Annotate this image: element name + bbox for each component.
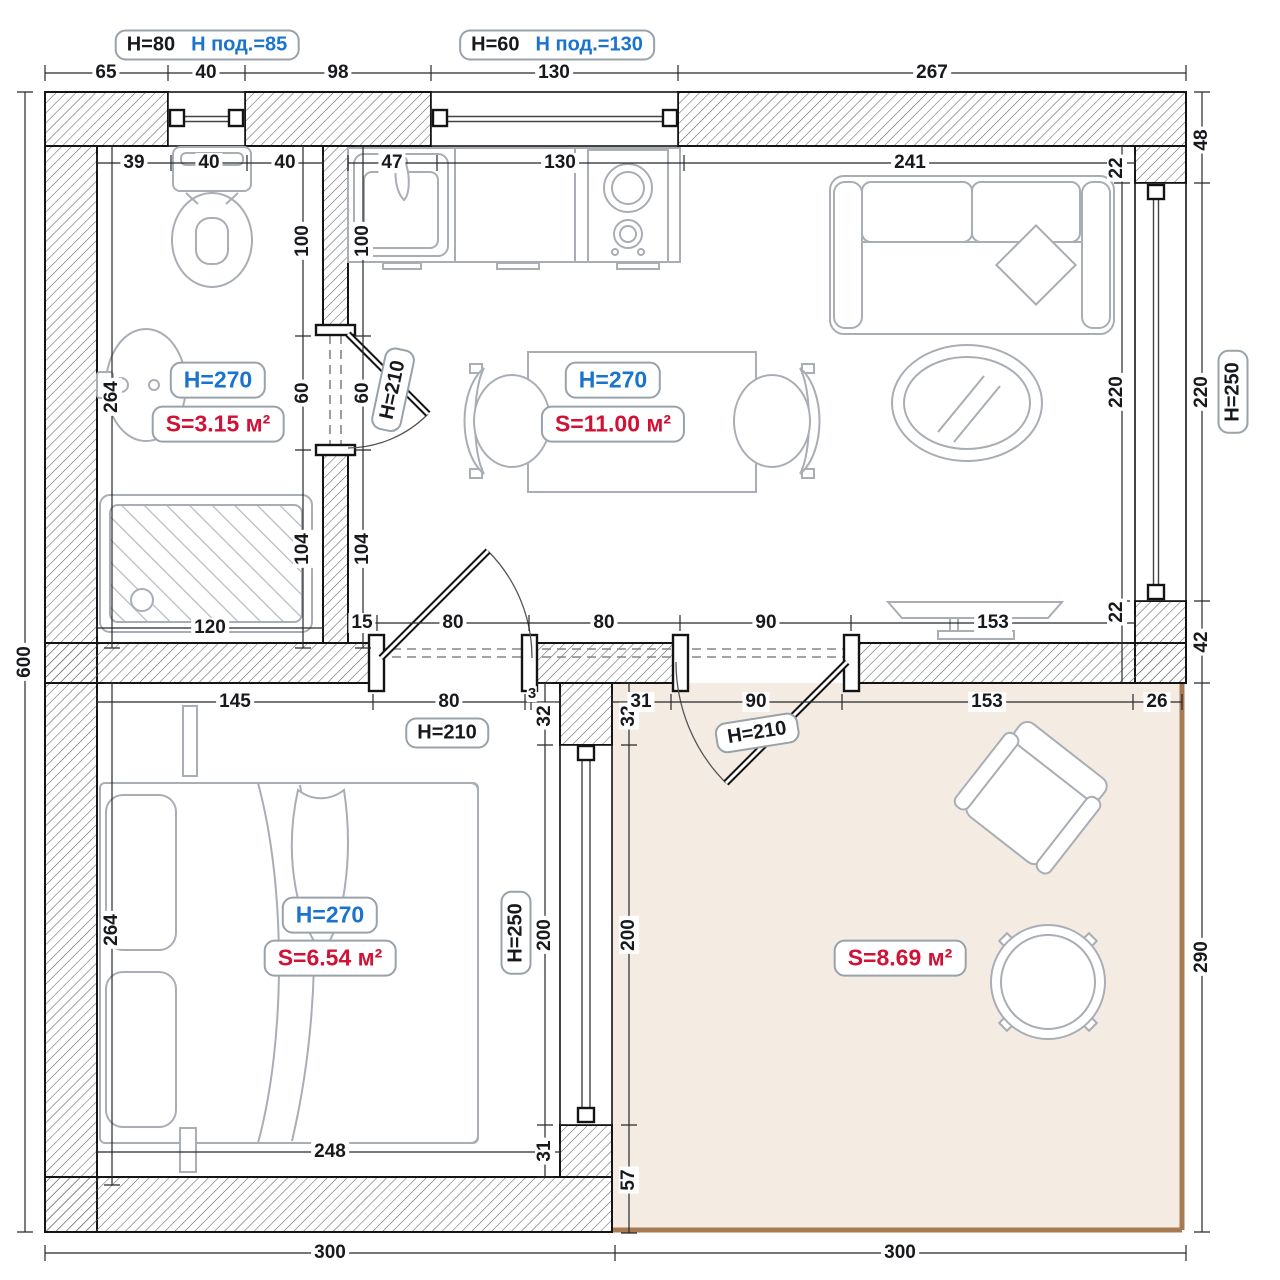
shower-tray [100, 495, 312, 632]
dim-mid-window-below-right: 57 [619, 1166, 639, 1193]
dim-bedroom-top-2: 80 [435, 692, 462, 712]
coffee-table [892, 345, 1042, 461]
kitchen-window [431, 92, 678, 146]
dim-bottom-2: 300 [881, 1243, 919, 1263]
dim-top-5: 267 [913, 63, 951, 83]
dim-bedroom-left: 264 [102, 911, 122, 949]
dim-top-1: 65 [92, 63, 119, 83]
dim-bedroom-top-3: 3 [527, 686, 537, 702]
window-height-label-right: H=250 [1218, 350, 1249, 434]
dim-top-3: 98 [324, 63, 351, 83]
callout-sill-height: H под.=85 [191, 34, 287, 56]
floor-plan: H=80H под.=85 H=60H под.=130 65 40 98 13… [0, 0, 1280, 1280]
callout-sill-height: H под.=130 [536, 34, 643, 56]
dining-chair-right [734, 364, 820, 478]
dim-right-inner-3: 22 [1107, 598, 1127, 625]
dim-right-outer-4: 290 [1192, 938, 1212, 976]
dim-hall-upper-2: 80 [439, 613, 466, 633]
dim-top-2: 40 [192, 63, 219, 83]
dim-hall-upper-4: 90 [752, 613, 779, 633]
dim-bath-top-2: 40 [195, 153, 222, 173]
dim-right-inner-1: 22 [1107, 154, 1127, 181]
window-height-label-middle: H=250 [501, 891, 532, 975]
cooktop [588, 150, 668, 262]
dim-right-inner-2: 220 [1107, 373, 1127, 411]
bedroom-door [381, 551, 532, 658]
dim-bath-top-3: 40 [271, 153, 298, 173]
dim-kitchen-top-2: 130 [541, 153, 579, 173]
dim-wall-stub-left: 32 [535, 702, 555, 729]
dim-mid-window-right: 200 [619, 916, 639, 954]
bedroom-area-label: S=6.54 м² [264, 940, 397, 977]
dim-mid-window-below-left: 31 [535, 1137, 555, 1164]
dim-right-outer-3: 42 [1192, 628, 1212, 655]
callout-height: H=60 [471, 34, 519, 56]
sofa [830, 176, 1114, 334]
dim-balcony-top-2: 90 [742, 692, 769, 712]
dim-top-4: 130 [535, 63, 573, 83]
dim-left-total: 600 [15, 643, 35, 681]
bedroom-cabinet-top [183, 706, 197, 776]
balcony-round-table [991, 925, 1105, 1039]
dim-balcony-top-1: 31 [627, 692, 654, 712]
bathroom-area-label: S=3.15 м² [152, 406, 285, 443]
plan-drawing [0, 0, 1280, 1280]
dim-kitchen-col-104: 104 [353, 530, 373, 568]
dim-bathroom-left: 264 [102, 378, 122, 416]
callout-height: H=80 [127, 34, 175, 56]
dim-kitchen-col-100: 100 [353, 222, 373, 260]
living-room-window [1135, 183, 1186, 601]
window-callout-kitchen: H=60H под.=130 [459, 30, 655, 61]
dim-right-outer-2: 220 [1192, 373, 1212, 411]
dim-bath-col-60: 60 [293, 379, 313, 406]
dim-kitchen-top-1: 47 [378, 153, 405, 173]
dim-bath-col-104: 104 [293, 530, 313, 568]
dim-hall-upper-1: 15 [348, 613, 375, 633]
balcony-area-label: S=8.69 м² [834, 940, 967, 977]
bathroom-height-label: H=270 [170, 362, 266, 399]
bedroom-cabinet-bottom [180, 1128, 196, 1172]
dim-bedroom-bottom: 248 [311, 1142, 349, 1162]
bedroom-door-height-label: H=210 [405, 718, 489, 749]
dim-kitchen-col-60: 60 [353, 379, 373, 406]
dim-balcony-top-4: 26 [1143, 692, 1170, 712]
dim-bath-top-1: 39 [120, 153, 147, 173]
kitchen-area-label: S=11.00 м² [541, 406, 685, 443]
dim-tv-width: 153 [974, 613, 1012, 633]
dining-chair-left [465, 364, 551, 478]
dim-kitchen-top-3: 241 [891, 153, 929, 173]
dim-shower-width: 120 [191, 618, 229, 638]
dim-balcony-top-3: 153 [968, 692, 1006, 712]
bedroom-balcony-window [560, 745, 612, 1125]
dim-bedroom-top-1: 145 [216, 692, 254, 712]
window-callout-bathroom: H=80H под.=85 [115, 30, 300, 61]
dim-bath-col-100: 100 [293, 222, 313, 260]
bathroom-window [168, 92, 245, 146]
dim-bottom-1: 300 [311, 1243, 349, 1263]
dim-mid-window-left: 200 [535, 916, 555, 954]
kitchen-height-label: H=270 [565, 362, 661, 399]
dim-right-outer-1: 48 [1192, 126, 1212, 153]
bedroom-height-label: H=270 [282, 897, 378, 934]
dim-hall-upper-3: 80 [590, 613, 617, 633]
